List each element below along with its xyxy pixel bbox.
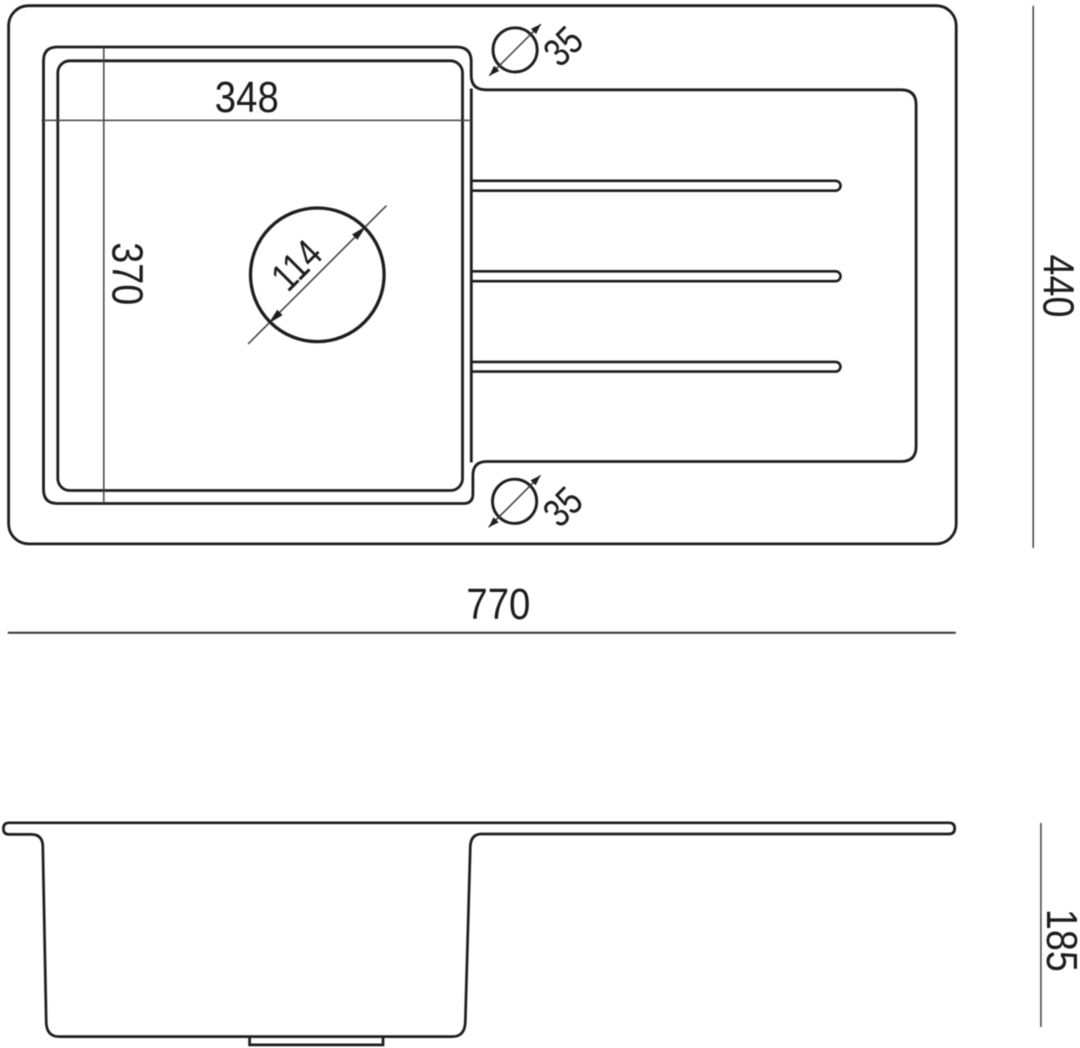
svg-text:114: 114 xyxy=(263,232,331,300)
svg-text:370: 370 xyxy=(103,242,152,305)
svg-text:35: 35 xyxy=(535,479,592,536)
svg-text:35: 35 xyxy=(535,18,592,75)
svg-text:770: 770 xyxy=(466,580,530,629)
svg-text:348: 348 xyxy=(215,73,279,122)
svg-text:185: 185 xyxy=(1037,909,1080,972)
svg-text:440: 440 xyxy=(1033,255,1080,318)
